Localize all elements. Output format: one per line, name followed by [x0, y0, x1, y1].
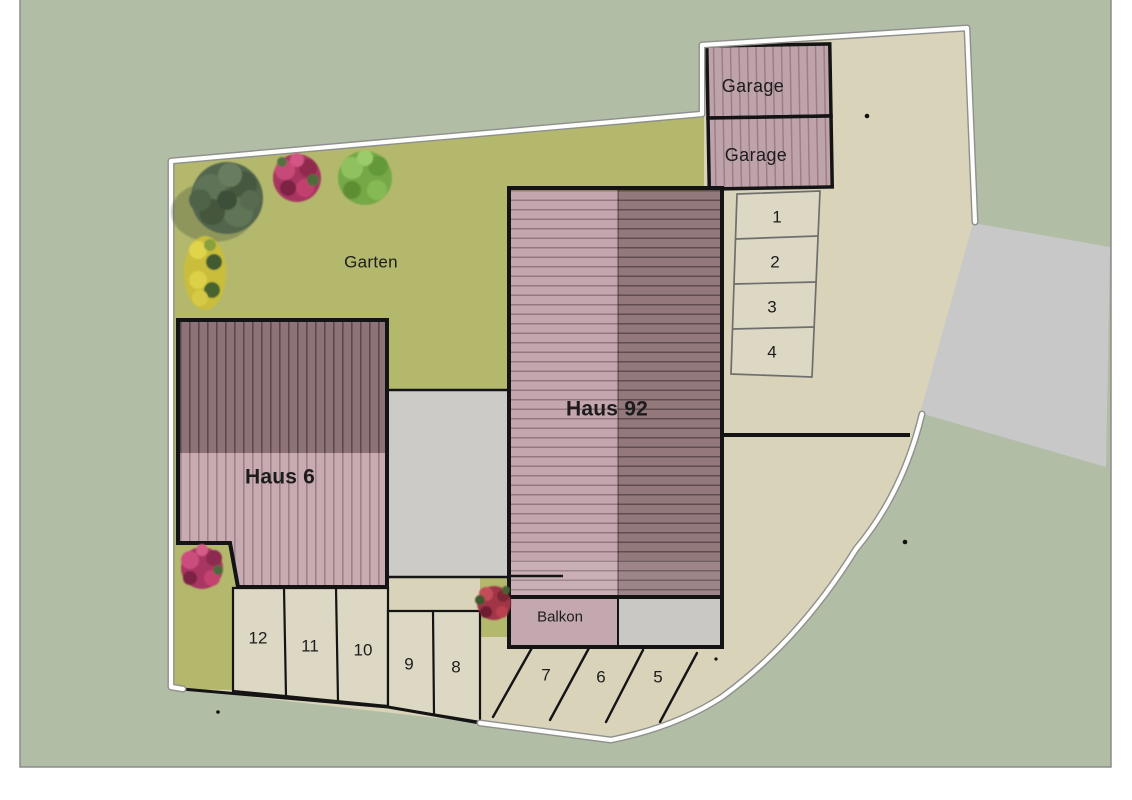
garage-1-label: Garage	[722, 77, 784, 95]
house-6-label: Haus 6	[245, 467, 315, 488]
parking-stall-4-label: 4	[767, 344, 776, 361]
parking-stall-12-label: 12	[249, 630, 268, 647]
parking-stall-11-label: 11	[301, 638, 319, 655]
courtyard-area	[387, 390, 509, 577]
balcony-label: Balkon	[537, 610, 583, 625]
garden-label: Garten	[344, 254, 398, 271]
parking-stall-8-label: 8	[451, 659, 460, 676]
garage-block	[707, 44, 832, 189]
parking-stall-9-label: 9	[404, 656, 413, 673]
garage-2-label: Garage	[725, 146, 787, 164]
parking-stall-10-label: 10	[354, 642, 373, 659]
parking-block-8-9	[388, 611, 480, 722]
house-92-label: Haus 92	[566, 399, 648, 420]
parking-stall-3-label: 3	[767, 299, 776, 316]
parking-stall-7-label: 7	[541, 667, 550, 684]
site-plan: Garage Garage Garten Haus 6 Haus 92 Balk…	[0, 0, 1132, 800]
yellow-bush-icon	[184, 236, 226, 310]
parking-stall-2-label: 2	[770, 254, 779, 271]
parking-stall-5-label: 5	[653, 669, 662, 686]
parking-stall-6-label: 6	[596, 669, 605, 686]
parking-stall-1-label: 1	[772, 209, 781, 226]
house-92-roof	[509, 188, 722, 597]
